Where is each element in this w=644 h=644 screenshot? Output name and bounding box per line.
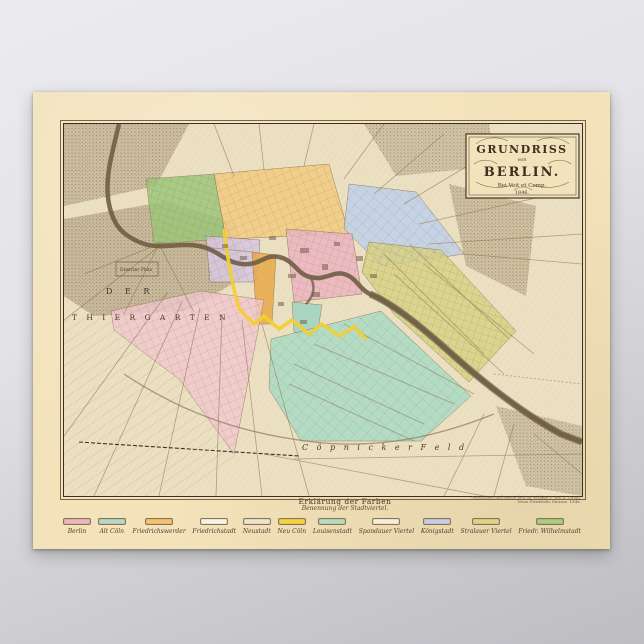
legend-item-louisenstadt: Louisenstadt (313, 518, 352, 535)
color-swatch (200, 518, 228, 525)
legend-subheading: Benennung der Stadtviertel. (109, 506, 581, 512)
legend-label: Friedrichswerder (132, 528, 185, 535)
map-poster: D E R T H I E R G A R T E N C ö p n i c … (33, 92, 610, 549)
color-swatch (372, 518, 400, 525)
legend: Erklärung der Farben Benennung der Stadt… (63, 498, 581, 535)
cartouche-year: 1846. (515, 190, 530, 196)
legend-label: Friedr. Wilhelmstadt (518, 528, 581, 535)
legend-item-berlin: Berlin (63, 518, 91, 535)
color-swatch (472, 518, 500, 525)
legend-label: Louisenstadt (313, 528, 352, 535)
legend-item-friedrichstadt: Friedrichstadt (192, 518, 236, 535)
color-swatch (318, 518, 346, 525)
cartouche-city: BERLIN. (484, 165, 561, 180)
legend-label: Friedrichstadt (192, 528, 236, 535)
legend-item-alt-coeln: Alt Cöln (98, 518, 126, 535)
legend-item-neu-coeln: Neu Cöln (278, 518, 307, 535)
legend-label: Berlin (68, 528, 87, 535)
color-swatch (63, 518, 91, 525)
legend-label: Neustadt (243, 528, 271, 535)
scene-background: D E R T H I E R G A R T E N C ö p n i c … (0, 0, 644, 644)
map-frame: D E R T H I E R G A R T E N C ö p n i c … (63, 123, 583, 497)
cartouche-title: GRUNDRISS (476, 143, 567, 156)
color-swatch (536, 518, 564, 525)
cartouche-publisher: Bei Veit et Comp. (498, 183, 547, 189)
color-swatch (243, 518, 271, 525)
legend-item-friedrichswerder: Friedrichswerder (132, 518, 185, 535)
legend-label: Spandauer Viertel (359, 528, 414, 535)
berlin-map: D E R T H I E R G A R T E N C ö p n i c … (64, 124, 582, 496)
legend-label: Königstadt (421, 528, 454, 535)
color-swatch (423, 518, 451, 525)
legend-item-spandauer-viertel: Spandauer Viertel (359, 518, 414, 535)
legend-label: Stralauer Viertel (461, 528, 512, 535)
legend-item-stralauer-viertel: Stralauer Viertel (461, 518, 512, 535)
label-exercier-platz: Exercier Platz (120, 267, 153, 273)
legend-items: Berlin Alt Cöln Friedrichswerder Friedri… (63, 518, 581, 535)
cartouche-von: von (517, 157, 526, 163)
color-swatch (98, 518, 126, 525)
imprint: Gezeichnet und gestochen im Verlage v. V… (471, 496, 581, 505)
color-swatch (145, 518, 173, 525)
label-coepnicker-feld: C ö p n i c k e r F e l d (302, 443, 467, 452)
title-cartouche: GRUNDRISS von BERLIN. Bei Veit et Comp. … (466, 134, 579, 198)
imprint-line-2: Neue Friedrichs Strasse. 1846. (471, 501, 581, 506)
legend-label: Alt Cöln (99, 528, 124, 535)
legend-item-koenigstadt: Königstadt (421, 518, 454, 535)
legend-label: Neu Cöln (278, 528, 307, 535)
legend-item-neustadt: Neustadt (243, 518, 271, 535)
legend-item-friedr-wilhelmstadt: Friedr. Wilhelmstadt (518, 518, 581, 535)
label-der: D E R (106, 287, 154, 296)
label-thiergarten: T H I E R G A R T E N (72, 313, 229, 322)
color-swatch (278, 518, 306, 525)
